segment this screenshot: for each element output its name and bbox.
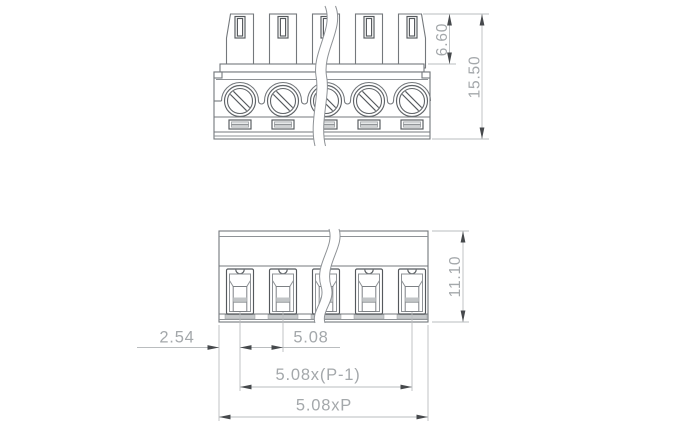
dim-plug-height: 6.60	[434, 14, 452, 64]
plug-tower	[227, 14, 254, 68]
tower-slot	[364, 17, 374, 39]
dim-pole-span: 5.08x(P-1)	[240, 366, 412, 389]
dim-arrow	[240, 345, 252, 350]
dim-arrow	[461, 311, 466, 323]
front-view	[219, 229, 428, 323]
plug-tower	[356, 14, 383, 68]
dim-label: 15.50	[467, 56, 484, 99]
dim-label: 2.54	[159, 329, 194, 347]
plug-tower	[399, 14, 426, 68]
dim-arrow	[417, 415, 429, 420]
dim-arrow	[480, 14, 485, 26]
dim-arrow	[401, 385, 413, 390]
dim-arrow	[461, 231, 466, 243]
dim-arrow	[480, 128, 485, 140]
dim-pitch: 5.08	[240, 329, 340, 350]
dim-label: 11.10	[447, 256, 464, 298]
dim-label: 6.60	[434, 23, 451, 56]
dim-overall-height: 15.50	[467, 14, 485, 139]
tower-slot	[407, 17, 417, 39]
plug-tower	[270, 14, 297, 68]
dim-label: 5.08xP	[296, 397, 352, 415]
solder-pad	[354, 315, 384, 319]
flange-step-left	[214, 72, 222, 78]
tower-slot	[235, 17, 245, 39]
dim-arrow	[240, 385, 252, 390]
top-view	[214, 6, 431, 146]
top-view-dimensions: 6.60 15.50	[423, 14, 489, 139]
dim-arrow	[219, 415, 231, 420]
flange-step-right	[422, 72, 430, 78]
dim-label: 5.08x(P-1)	[275, 366, 360, 384]
terminal-block-drawing: 6.60 15.50	[0, 0, 680, 440]
dim-front-height: 11.10	[447, 231, 465, 322]
dim-edge-offset: 2.54	[137, 329, 219, 350]
tower-slot	[278, 17, 288, 39]
dim-label: 5.08	[293, 329, 328, 347]
dim-overall-width: 5.08xP	[219, 397, 428, 420]
dim-arrow	[272, 345, 284, 350]
dim-arrow	[208, 345, 220, 350]
